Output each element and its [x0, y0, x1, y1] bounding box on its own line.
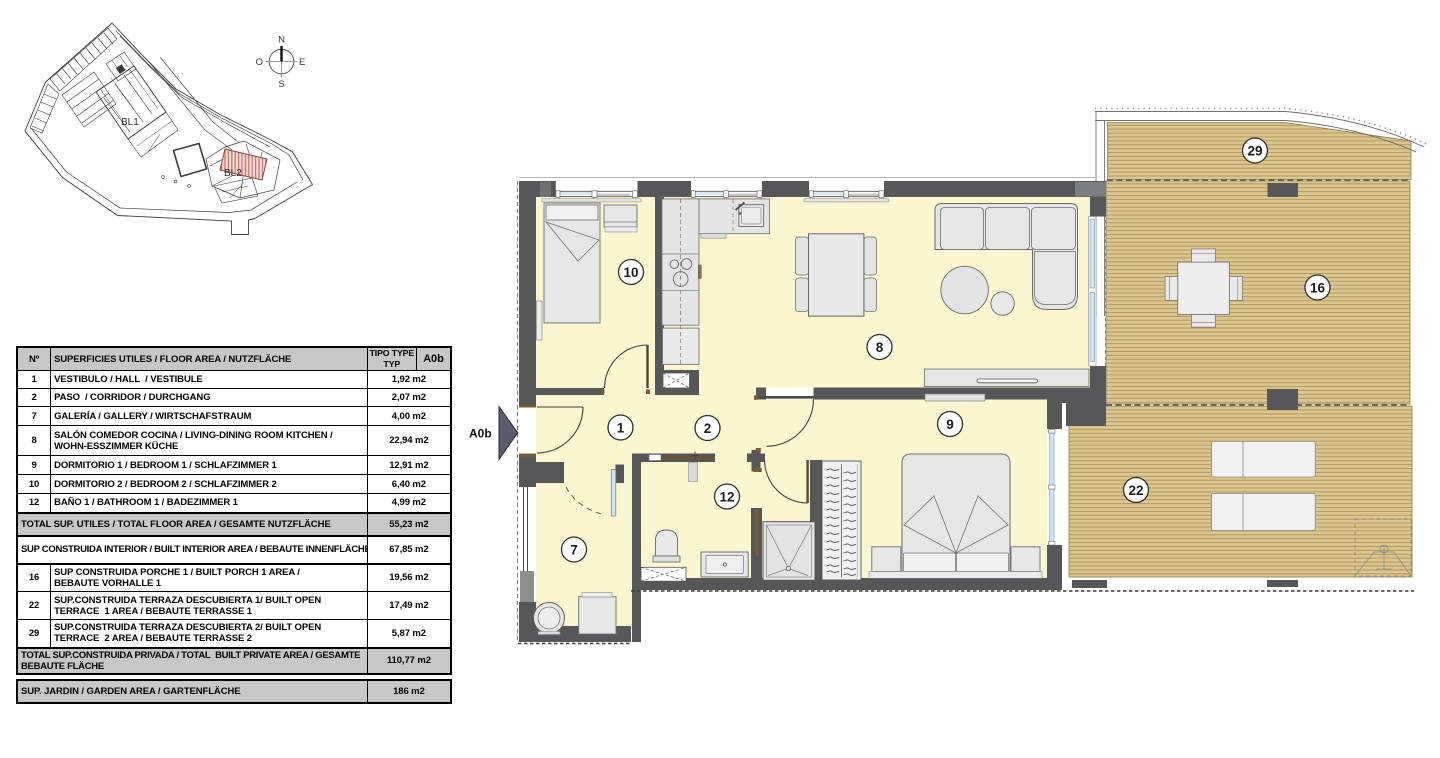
svg-text:BL1: BL1: [121, 117, 139, 128]
svg-text:1: 1: [617, 420, 625, 435]
svg-text:7: 7: [570, 542, 578, 557]
svg-text:16: 16: [1310, 280, 1326, 295]
svg-text:S: S: [278, 79, 284, 90]
svg-text:A0b: A0b: [469, 427, 492, 441]
svg-text:10: 10: [623, 265, 638, 280]
svg-text:9: 9: [946, 417, 954, 432]
svg-text:BL2: BL2: [224, 168, 242, 179]
svg-text:E: E: [299, 57, 305, 68]
svg-text:22: 22: [1128, 483, 1143, 498]
svg-text:29: 29: [1247, 143, 1262, 158]
svg-text:12: 12: [719, 489, 734, 504]
svg-text:2: 2: [704, 421, 712, 436]
svg-text:N: N: [278, 35, 285, 46]
svg-text:8: 8: [876, 340, 884, 355]
svg-text:O: O: [256, 57, 263, 68]
